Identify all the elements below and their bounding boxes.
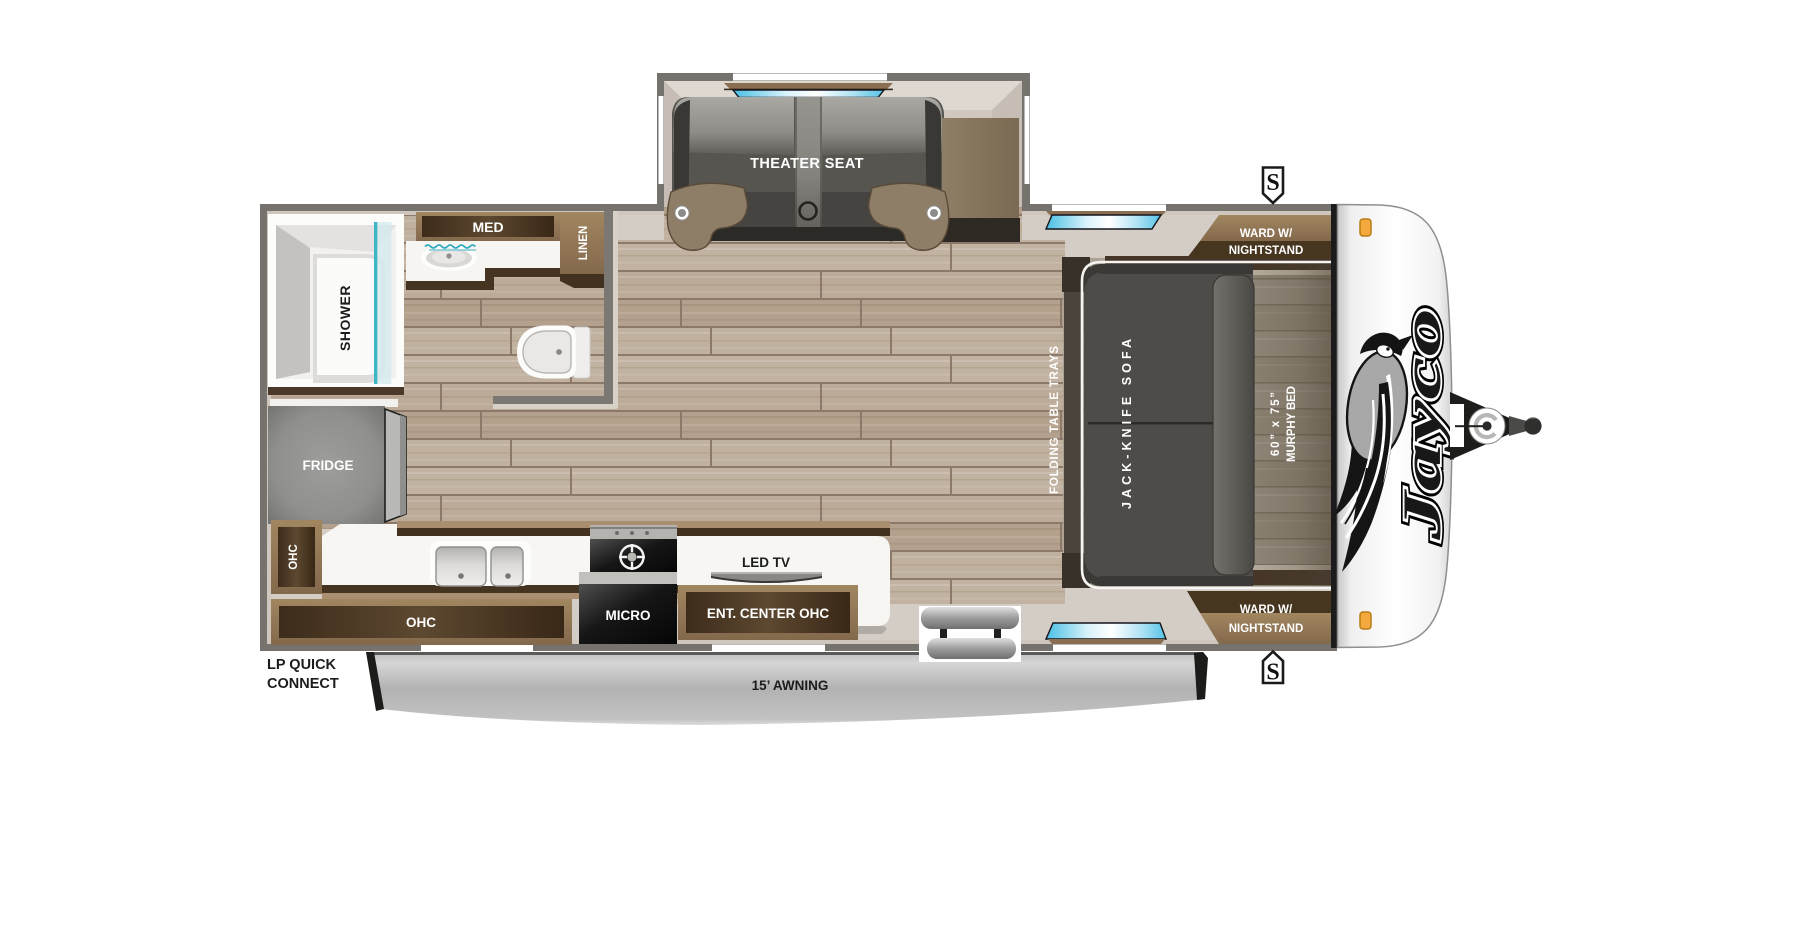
svg-text:OHC: OHC	[288, 544, 300, 570]
svg-text:LINEN: LINEN	[578, 226, 590, 261]
svg-text:LP QUICK: LP QUICK	[267, 657, 337, 673]
svg-text:CONNECT: CONNECT	[267, 676, 339, 692]
svg-text:JACK-KNIFE SOFA: JACK-KNIFE SOFA	[1120, 339, 1134, 509]
svg-text:15’ AWNING: 15’ AWNING	[752, 678, 829, 693]
svg-text:FRIDGE: FRIDGE	[302, 458, 353, 473]
svg-text:THEATER SEAT: THEATER SEAT	[750, 156, 864, 172]
svg-text:NIGHTSTAND: NIGHTSTAND	[1229, 245, 1304, 257]
svg-text:MED: MED	[472, 219, 503, 235]
svg-text:MURPHY BED: MURPHY BED	[1286, 386, 1298, 462]
svg-text:FOLDING TABLE TRAYS: FOLDING TABLE TRAYS	[1049, 346, 1061, 494]
svg-text:ENT. CENTER OHC: ENT. CENTER OHC	[707, 606, 830, 621]
svg-text:LED TV: LED TV	[742, 555, 790, 570]
svg-text:60” x 75”: 60” x 75”	[1270, 392, 1282, 456]
svg-text:WARD W/: WARD W/	[1240, 604, 1293, 616]
svg-text:MICRO: MICRO	[606, 608, 651, 623]
svg-text:WARD W/: WARD W/	[1240, 228, 1293, 240]
svg-text:SHOWER: SHOWER	[337, 285, 353, 351]
svg-text:S: S	[1266, 660, 1279, 686]
svg-text:S: S	[1266, 170, 1279, 196]
svg-text:NIGHTSTAND: NIGHTSTAND	[1229, 623, 1304, 635]
svg-text:OHC: OHC	[406, 615, 436, 630]
